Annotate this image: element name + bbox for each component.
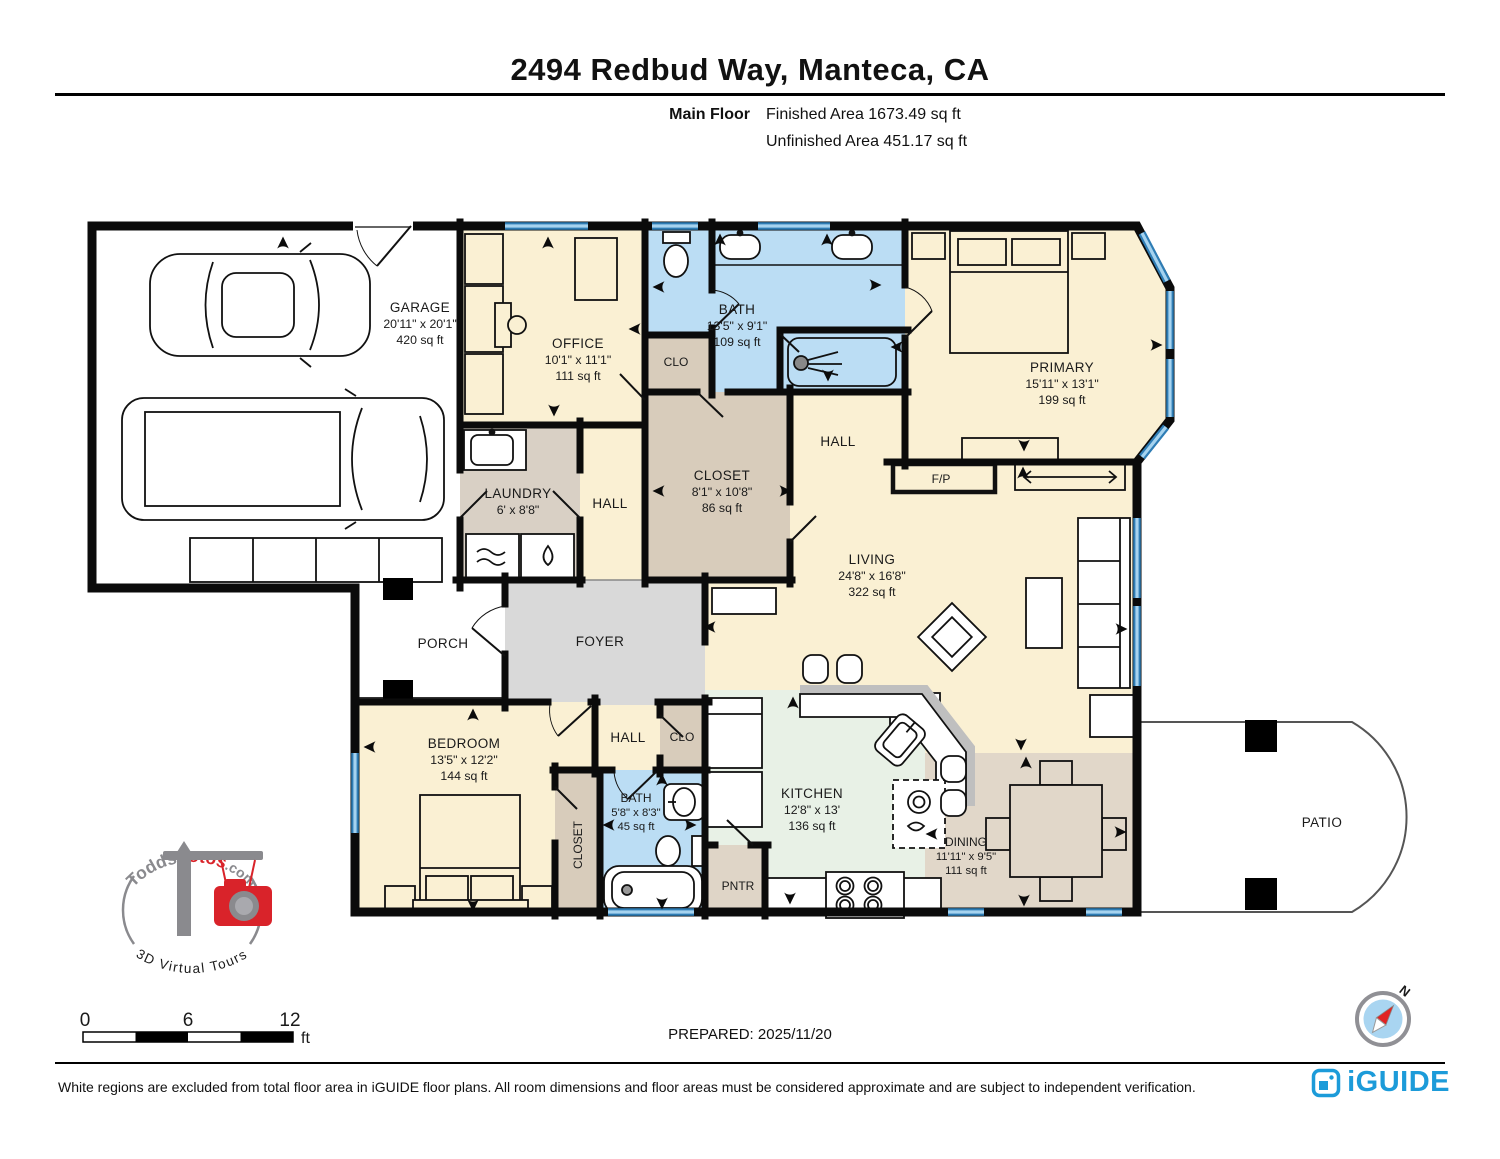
svg-text:144 sq ft: 144 sq ft: [440, 769, 488, 783]
label-fireplace: F/P: [932, 472, 951, 486]
fridge-icon: [707, 698, 762, 768]
label-kitchen: KITCHEN: [781, 786, 843, 801]
svg-text:3D Virtual Tours: 3D Virtual Tours: [134, 946, 251, 976]
footer-divider: [55, 1062, 1445, 1064]
svg-text:111 sq ft: 111 sq ft: [945, 865, 988, 877]
label-patio: PATIO: [1302, 815, 1343, 830]
svg-text:13'5" x 12'2": 13'5" x 12'2": [430, 753, 497, 767]
patio-post-icon: [1245, 878, 1277, 910]
floorplan-drawing: GARAGE 20'11" x 20'1" 420 sq ft OFFICE 1…: [0, 0, 1500, 1159]
label-bath2: BATH: [620, 791, 651, 805]
table-icon: [1026, 578, 1062, 648]
svg-text:136 sq ft: 136 sq ft: [788, 819, 836, 833]
svg-text:24'8" x 16'8": 24'8" x 16'8": [838, 569, 905, 583]
svg-text:86 sq ft: 86 sq ft: [702, 501, 743, 515]
stool-icon: [803, 655, 828, 683]
svg-text:109 sq ft: 109 sq ft: [713, 335, 761, 349]
garage-door: [353, 220, 413, 232]
patio-post-icon: [1245, 720, 1277, 752]
floorplan-page: 2494 Redbud Way, Manteca, CA Main Floor …: [0, 0, 1500, 1159]
toilet-icon: [656, 836, 680, 866]
disclaimer-text: White regions are excluded from total fl…: [58, 1079, 1196, 1095]
label-living: LIVING: [849, 552, 896, 567]
svg-text:322 sq ft: 322 sq ft: [848, 585, 896, 599]
label-garage: GARAGE: [390, 300, 450, 315]
svg-text:15'11" x 13'1": 15'11" x 13'1": [1025, 377, 1098, 391]
label-office: OFFICE: [552, 336, 604, 351]
label-hall2: HALL: [592, 496, 627, 511]
label-hall1: HALL: [820, 434, 855, 449]
svg-text:5'8" x 8'3": 5'8" x 8'3": [611, 807, 660, 819]
svg-text:45 sq ft: 45 sq ft: [617, 821, 655, 833]
svg-text:8'1" x 10'8": 8'1" x 10'8": [692, 485, 753, 499]
svg-text:20'11" x 20'1": 20'11" x 20'1": [383, 317, 456, 331]
label-pantry: PNTR: [722, 879, 755, 893]
truck-icon: [122, 389, 444, 529]
porch-pillar-icon: [383, 578, 413, 600]
svg-text:199 sq ft: 199 sq ft: [1038, 393, 1086, 407]
console-icon: [712, 588, 776, 614]
label-laundry: LAUNDRY: [484, 486, 551, 501]
svg-text:111 sq ft: 111 sq ft: [555, 369, 601, 383]
camera-sign-icon: [163, 841, 272, 936]
svg-text:6' x 8'8": 6' x 8'8": [497, 503, 540, 517]
label-clo1: CLO: [664, 355, 689, 369]
label-foyer: FOYER: [576, 634, 625, 649]
iguide-wordmark: iGUIDE: [1347, 1066, 1450, 1099]
iguide-logo: iGUIDE: [1311, 1066, 1450, 1099]
stool-icon: [941, 790, 966, 816]
label-porch: PORCH: [418, 636, 469, 651]
label-bedroom: BEDROOM: [428, 736, 501, 751]
label-dining: DINING: [945, 835, 987, 849]
shower-icon: [788, 338, 896, 386]
svg-text:420 sq ft: 420 sq ft: [396, 333, 444, 347]
prepared-date: PREPARED: 2025/11/20: [0, 1026, 1500, 1043]
label-hall3: HALL: [610, 730, 645, 745]
label-primary: PRIMARY: [1030, 360, 1094, 375]
label-clo2: CLO: [670, 730, 695, 744]
svg-text:12'8" x 13': 12'8" x 13': [784, 803, 840, 817]
svg-text:10'1" x 11'1": 10'1" x 11'1": [545, 353, 612, 367]
label-bath1: BATH: [719, 302, 756, 317]
svg-text:13'5" x 9'1": 13'5" x 9'1": [707, 319, 768, 333]
label-closet2: CLOSET: [571, 820, 585, 869]
garage-cabinets: [190, 538, 442, 582]
svg-text:11'11" x 9'5": 11'11" x 9'5": [936, 851, 996, 863]
car-icon: [150, 243, 370, 367]
sofa-icon: [1078, 518, 1130, 688]
label-closet1: CLOSET: [694, 468, 750, 483]
stool-icon: [837, 655, 862, 683]
patio-outline: [1141, 720, 1407, 912]
toddsfotos-watermark: ToddsFotos.com 3D Virtual Tours: [122, 841, 272, 976]
washer-icon: [466, 534, 519, 580]
side-table-icon: [1090, 695, 1134, 737]
iguide-icon: [1311, 1068, 1341, 1098]
toilet-icon: [663, 232, 690, 277]
stool-icon: [941, 756, 966, 782]
